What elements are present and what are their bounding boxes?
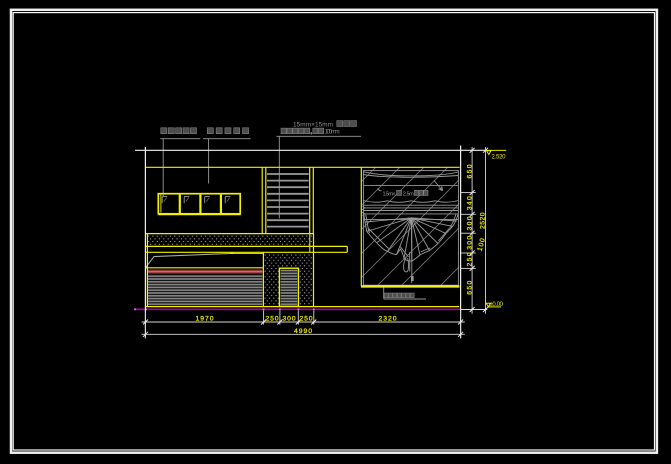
svg-text:300: 300 [466,236,473,250]
svg-text:650: 650 [466,280,473,294]
svg-text:250: 250 [266,315,279,322]
svg-text:15mm×15mm: 15mm×15mm [293,121,333,128]
svg-text:2520: 2520 [480,212,487,229]
svg-text:300: 300 [283,315,296,322]
svg-text:1970: 1970 [196,315,214,322]
svg-text:2.520: 2.520 [492,155,507,161]
svg-text:2320: 2320 [379,315,397,322]
svg-text:250: 250 [300,315,313,322]
svg-text:340: 340 [466,196,473,210]
svg-text:250: 250 [466,252,473,266]
svg-text:300: 300 [466,216,473,230]
svg-text:1.5m×: 1.5m× [383,191,396,197]
svg-text:100mm: 100mm [325,130,340,136]
svg-text:4990: 4990 [294,328,312,335]
svg-text:±0.00: ±0.00 [490,302,504,308]
svg-text:2.5m: 2.5m [403,191,414,197]
svg-text:650: 650 [466,164,473,178]
